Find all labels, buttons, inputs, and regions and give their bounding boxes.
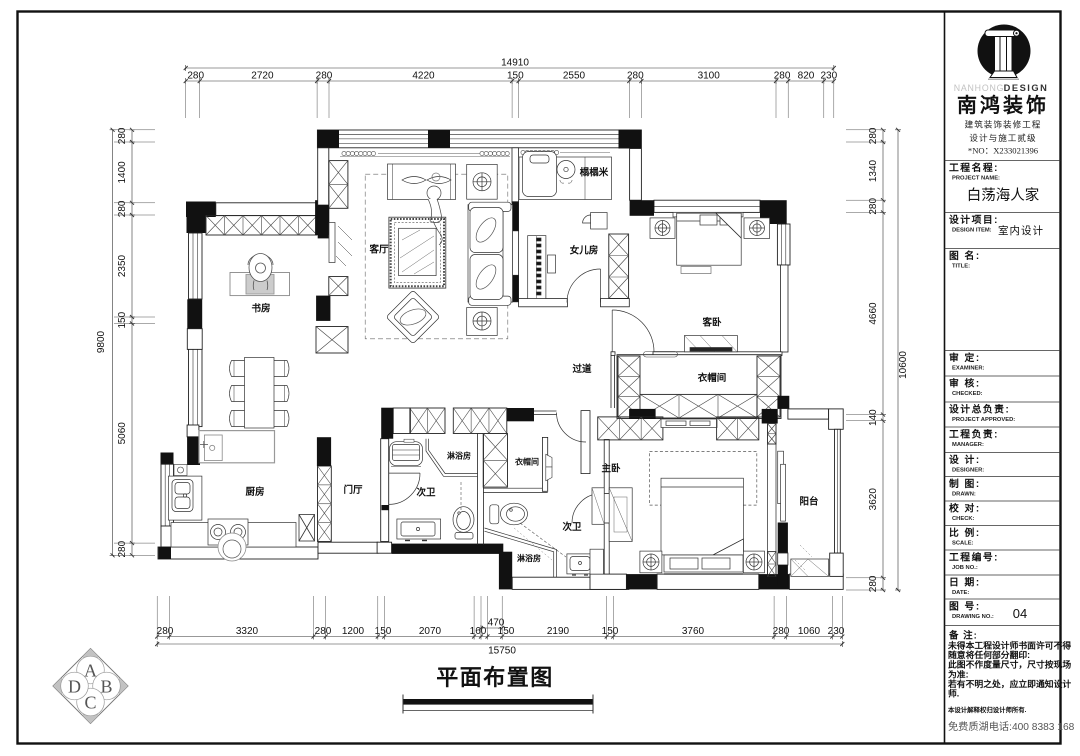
svg-text:280: 280 <box>187 71 204 82</box>
svg-text:女儿房: 女儿房 <box>570 245 599 257</box>
svg-text:PROJECT APPROVED:: PROJECT APPROVED: <box>952 417 1015 423</box>
svg-text:280: 280 <box>774 71 791 82</box>
svg-text:次卫: 次卫 <box>416 487 436 499</box>
svg-text:230: 230 <box>820 71 837 82</box>
svg-text:DATE:: DATE: <box>952 590 969 596</box>
svg-text:D: D <box>68 677 81 697</box>
svg-text:280: 280 <box>627 71 644 82</box>
svg-text:280: 280 <box>157 626 174 637</box>
svg-text:04: 04 <box>1013 606 1027 621</box>
svg-text:A: A <box>84 661 97 681</box>
svg-text:主卧: 主卧 <box>601 463 621 475</box>
svg-text:厨房: 厨房 <box>245 486 264 498</box>
svg-text:过道: 过道 <box>572 363 592 375</box>
svg-text:160: 160 <box>470 626 487 637</box>
svg-text:工程编号:: 工程编号: <box>949 551 999 564</box>
svg-text:榻榻米: 榻榻米 <box>579 167 609 179</box>
svg-text:淋浴房: 淋浴房 <box>447 451 471 461</box>
svg-text:为准:: 为准: <box>948 668 969 679</box>
svg-text:客厅: 客厅 <box>368 244 389 256</box>
svg-text:审 定:: 审 定: <box>949 351 981 364</box>
svg-text:DRAWING NO.:: DRAWING NO.: <box>952 614 994 620</box>
svg-text:比 例:: 比 例: <box>949 526 981 539</box>
svg-text:设计与施工贰级: 设计与施工贰级 <box>969 132 1036 143</box>
svg-text:9800: 9800 <box>96 330 107 353</box>
svg-text:DRAWN:: DRAWN: <box>952 492 976 498</box>
svg-text:2350: 2350 <box>117 254 128 277</box>
svg-text:DESIGNER:: DESIGNER: <box>952 468 984 474</box>
svg-text:2190: 2190 <box>547 626 570 637</box>
svg-text:3320: 3320 <box>236 626 259 637</box>
svg-text:衣帽间: 衣帽间 <box>515 457 539 467</box>
svg-text:4220: 4220 <box>412 71 435 82</box>
svg-text:图 名:: 图 名: <box>949 249 981 262</box>
svg-text:1400: 1400 <box>117 161 128 184</box>
svg-text:MANAGER:: MANAGER: <box>952 442 984 448</box>
svg-text:DESIGN ITEM:: DESIGN ITEM: <box>952 228 992 234</box>
svg-text:DESIGN: DESIGN <box>1004 83 1049 93</box>
svg-text:5060: 5060 <box>117 422 128 445</box>
svg-text:C: C <box>84 693 96 713</box>
svg-text:设计总负责:: 设计总负责: <box>949 403 1010 416</box>
svg-text:阳台: 阳台 <box>799 496 819 508</box>
svg-text:此图不作度量尺寸，尺寸按现场: 此图不作度量尺寸，尺寸按现场 <box>948 659 1071 670</box>
svg-text:280: 280 <box>773 626 790 637</box>
svg-text:14910: 14910 <box>501 58 529 69</box>
svg-text:PROJECT NAME:: PROJECT NAME: <box>952 176 1000 182</box>
svg-text:1060: 1060 <box>798 626 821 637</box>
svg-text:2550: 2550 <box>563 71 586 82</box>
svg-text:次卫: 次卫 <box>562 521 582 533</box>
svg-text:150: 150 <box>602 626 619 637</box>
svg-text:审 核:: 审 核: <box>949 377 981 390</box>
svg-text:3760: 3760 <box>682 626 705 637</box>
svg-text:150: 150 <box>375 626 392 637</box>
svg-text:EXAMINER:: EXAMINER: <box>952 366 985 372</box>
svg-text:白荡海人家: 白荡海人家 <box>967 187 1040 204</box>
svg-text:280: 280 <box>315 626 332 637</box>
svg-text:3100: 3100 <box>698 71 721 82</box>
svg-text:书房: 书房 <box>251 303 270 315</box>
svg-text:150: 150 <box>507 71 524 82</box>
svg-text:本设计解释权归设计师所有.: 本设计解释权归设计师所有. <box>948 705 1027 714</box>
svg-text:SCALE:: SCALE: <box>952 541 974 547</box>
svg-text:日 期:: 日 期: <box>949 576 981 589</box>
svg-text:客卧: 客卧 <box>701 317 722 329</box>
svg-text:若有不明之处，应立即通知设计: 若有不明之处，应立即通知设计 <box>947 678 1071 689</box>
svg-text:150: 150 <box>117 311 128 328</box>
svg-text:CHECKED:: CHECKED: <box>952 391 983 397</box>
svg-text:衣帽间: 衣帽间 <box>698 372 727 384</box>
svg-text:制 图:: 制 图: <box>949 477 981 490</box>
svg-text:15750: 15750 <box>488 646 516 657</box>
svg-text:B: B <box>100 677 112 697</box>
svg-text:室内设计: 室内设计 <box>998 224 1044 237</box>
svg-text:*NO：X233021396: *NO：X233021396 <box>968 146 1039 156</box>
svg-text:2720: 2720 <box>251 71 274 82</box>
svg-text:免费质湖电话:400 8383 168: 免费质湖电话:400 8383 168 <box>948 720 1075 733</box>
svg-text:TITLE:: TITLE: <box>952 264 970 270</box>
svg-text:师.: 师. <box>948 688 959 699</box>
svg-text:建筑装饰装修工程: 建筑装饰装修工程 <box>965 119 1042 130</box>
svg-text:工程负责:: 工程负责: <box>949 428 999 441</box>
svg-text:4660: 4660 <box>868 302 879 325</box>
svg-text:140: 140 <box>868 409 879 426</box>
svg-text:平面布置图: 平面布置图 <box>436 665 554 690</box>
svg-text:门厅: 门厅 <box>343 484 363 496</box>
svg-text:未得本工程设计师书面许可不得: 未得本工程设计师书面许可不得 <box>947 640 1071 651</box>
svg-text:工程名程:: 工程名程: <box>949 161 999 174</box>
svg-text:1200: 1200 <box>342 626 365 637</box>
svg-text:南鸿装饰: 南鸿装饰 <box>957 93 1049 117</box>
svg-text:图 号:: 图 号: <box>949 601 981 613</box>
svg-text:820: 820 <box>798 71 815 82</box>
svg-text:1340: 1340 <box>868 159 879 182</box>
svg-text:280: 280 <box>316 71 333 82</box>
svg-text:CHECK:: CHECK: <box>952 516 975 522</box>
svg-text:设计项目:: 设计项目: <box>949 213 999 226</box>
svg-text:2070: 2070 <box>419 626 442 637</box>
svg-text:10600: 10600 <box>898 351 909 379</box>
svg-text:校 对:: 校 对: <box>949 502 981 515</box>
svg-text:3620: 3620 <box>868 488 879 511</box>
svg-text:淋浴房: 淋浴房 <box>517 553 541 563</box>
svg-text:JOB NO.:: JOB NO.: <box>952 565 978 571</box>
svg-text:随意将任何部分翻印:: 随意将任何部分翻印: <box>948 649 1030 660</box>
svg-text:NANHONG: NANHONG <box>954 83 1005 93</box>
svg-text:设 计:: 设 计: <box>949 453 981 466</box>
